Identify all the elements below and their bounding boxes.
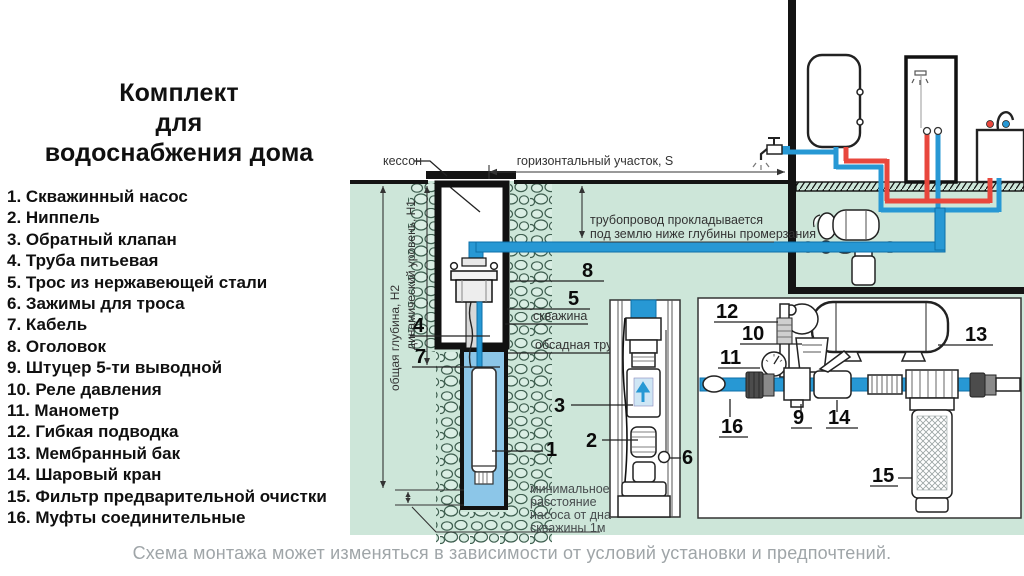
list-item: 15. Фильтр предварительной очистки: [7, 486, 358, 507]
pump-intake: [475, 472, 493, 484]
callout-10: 10: [742, 323, 764, 345]
water-supply-diagram: общая глубина, Н2 динамический уровень, …: [350, 0, 1024, 576]
callout-15: 15: [872, 465, 894, 487]
title-line-3: водоснабжения дома: [0, 138, 358, 168]
main-supply-pipe: [476, 242, 945, 252]
parts-list: 1. Скважинный насос 2. Ниппель 3. Обратн…: [0, 186, 358, 529]
list-item: 6. Зажимы для троса: [7, 293, 358, 314]
nipple-detail: [631, 427, 656, 457]
svg-text:трубопровод прокладывается: трубопровод прокладывается: [590, 213, 763, 227]
footer-note: Схема монтажа может изменяться в зависим…: [0, 543, 1024, 564]
callout-12: 12: [716, 301, 738, 323]
horizontal-section-label: горизонтальный участок, S: [517, 154, 674, 168]
corrugated-coupling: [868, 375, 902, 394]
check-valve: [627, 369, 660, 417]
callout-6: 6: [682, 447, 693, 469]
rope-clamp: [659, 452, 670, 463]
svg-text:расстояние: расстояние: [530, 495, 597, 509]
ground-line-right: [514, 180, 790, 184]
callout-8: 8: [582, 260, 593, 282]
shower-cabin: [906, 57, 956, 182]
borehole-label: скважина: [533, 309, 587, 323]
title-line-1: Комплект: [0, 78, 358, 108]
detail-pipe: [631, 300, 656, 318]
callout-9: 9: [793, 407, 804, 429]
list-item: 10. Реле давления: [7, 379, 358, 400]
shower-hot-valve: [924, 128, 931, 135]
callout-1: 1: [546, 439, 557, 461]
wellhead-flange: [451, 271, 497, 280]
caisson-label: кессон: [383, 154, 422, 168]
heater-fitting: [857, 119, 863, 125]
list-item: 11. Манометр: [7, 400, 358, 421]
list-item: 14. Шаровый кран: [7, 464, 358, 485]
list-item: 4. Труба питьевая: [7, 250, 358, 271]
list-item: 2. Ниппель: [7, 207, 358, 228]
drop-pipe: [477, 302, 482, 372]
list-item: 3. Обратный клапан: [7, 229, 358, 250]
callout-11: 11: [720, 347, 741, 369]
svg-text:скважины 1м: скважины 1м: [530, 521, 605, 535]
list-item: 5. Трос из нержавеющей стали: [7, 272, 358, 293]
svg-text:минимальное: минимальное: [530, 482, 610, 496]
pump-detail-panel: [610, 300, 680, 517]
basement-tank: [833, 210, 879, 240]
list-item: 12. Гибкая подводка: [7, 421, 358, 442]
pre-filter: [906, 370, 958, 512]
callout-14: 14: [828, 407, 851, 429]
list-item: 9. Штуцер 5-ти выводной: [7, 357, 358, 378]
list-item: 8. Оголовок: [7, 336, 358, 357]
callout-4: 4: [413, 315, 425, 337]
list-item: 7. Кабель: [7, 314, 358, 335]
svg-text:насоса от дна: насоса от дна: [530, 508, 611, 522]
callout-16: 16: [721, 416, 743, 438]
callout-13: 13: [965, 324, 987, 346]
title-line-2: для: [0, 108, 358, 138]
infographic-page: Комплект для водоснабжения дома 1. Скваж…: [0, 0, 1024, 576]
total-depth-label: общая глубина, Н2: [388, 285, 402, 391]
svg-text:под землю ниже глубины промерз: под землю ниже глубины промерзания: [590, 227, 816, 241]
membrane-tank: [812, 302, 948, 361]
submersible-pump: [472, 368, 496, 472]
list-item: 1. Скважинный насос: [7, 186, 358, 207]
callout-2: 2: [586, 430, 597, 452]
heater-fitting: [857, 89, 863, 95]
five-way-fitting: [784, 368, 810, 400]
supply-riser: [935, 208, 945, 250]
callout-5: 5: [568, 288, 579, 310]
shower-cold-valve: [935, 128, 942, 135]
water-heater: [808, 55, 860, 147]
callout-3: 3: [554, 395, 565, 417]
callout-7: 7: [415, 346, 426, 368]
ground-line-left: [350, 180, 428, 184]
min-distance-note: минимальное расстояние насоса от дна скв…: [530, 482, 611, 535]
page-title: Комплект для водоснабжения дома: [0, 78, 358, 168]
detail-hex-nut: [626, 318, 661, 340]
left-column: Комплект для водоснабжения дома 1. Скваж…: [0, 0, 358, 529]
list-item: 13. Мембранный бак: [7, 443, 358, 464]
basement-filter: [852, 256, 875, 285]
surface-equipment-panel: 12 10 11 16 9 14 13 15: [698, 298, 1021, 518]
basement-floor: [788, 287, 1024, 294]
list-item: 16. Муфты соединительные: [7, 507, 358, 528]
